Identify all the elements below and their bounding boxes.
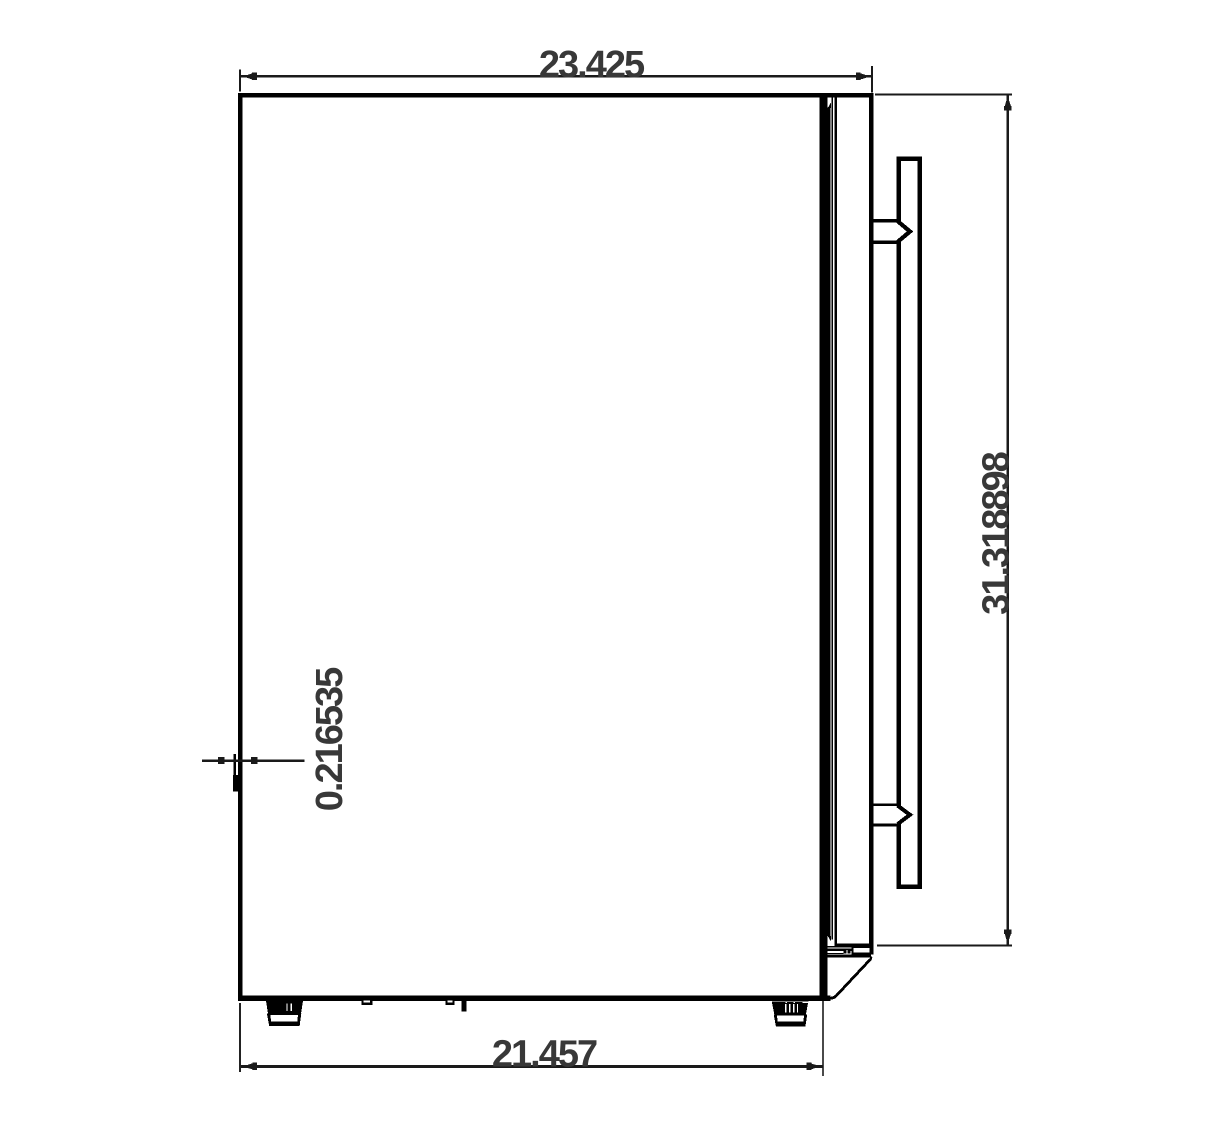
svg-text:21.457: 21.457 bbox=[492, 1034, 597, 1076]
svg-text:23.425: 23.425 bbox=[539, 44, 645, 86]
svg-text:0.216535: 0.216535 bbox=[309, 667, 351, 811]
svg-text:31.318898: 31.318898 bbox=[976, 452, 1018, 614]
